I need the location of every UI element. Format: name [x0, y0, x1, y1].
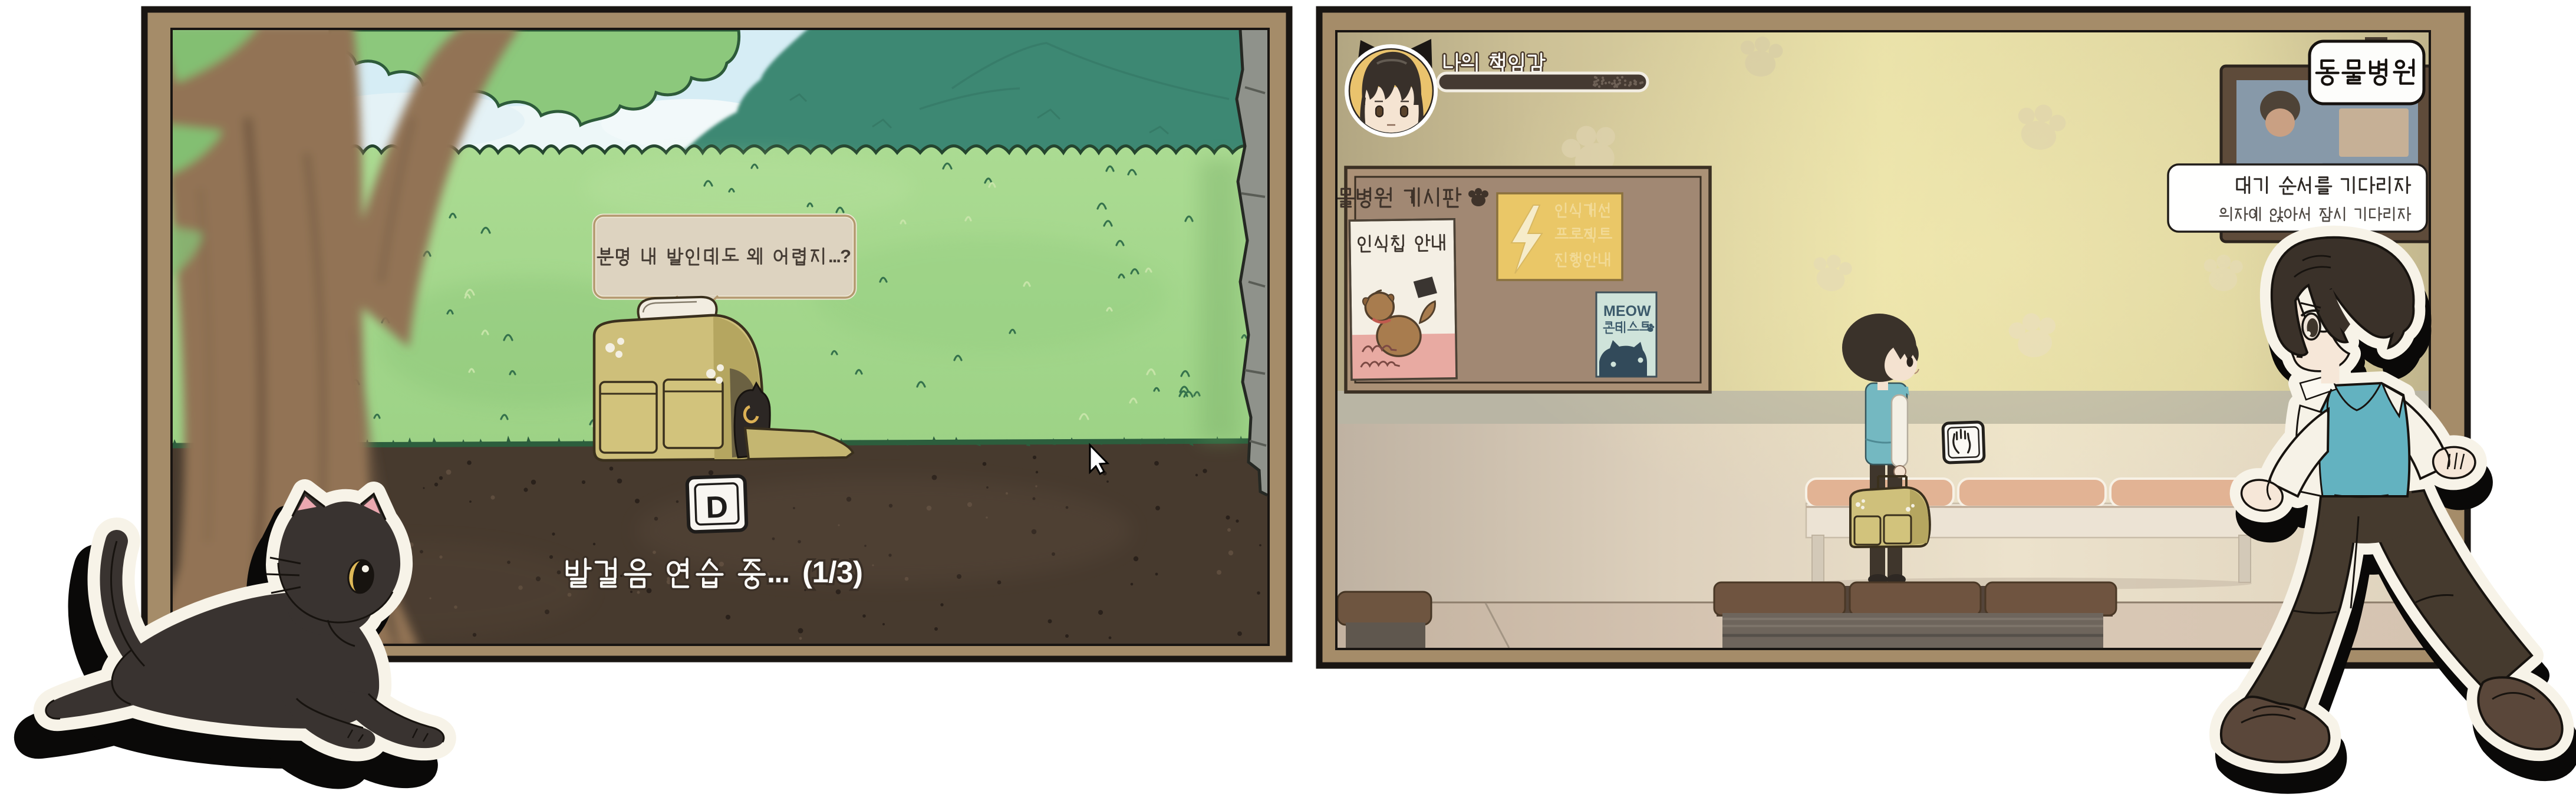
svg-text:(1/3): (1/3): [802, 555, 863, 589]
svg-text:D: D: [705, 490, 729, 525]
svg-text:MEOW: MEOW: [1603, 303, 1651, 319]
svg-text:...?: ...?: [828, 246, 851, 266]
svg-text:...: ...: [767, 555, 790, 589]
